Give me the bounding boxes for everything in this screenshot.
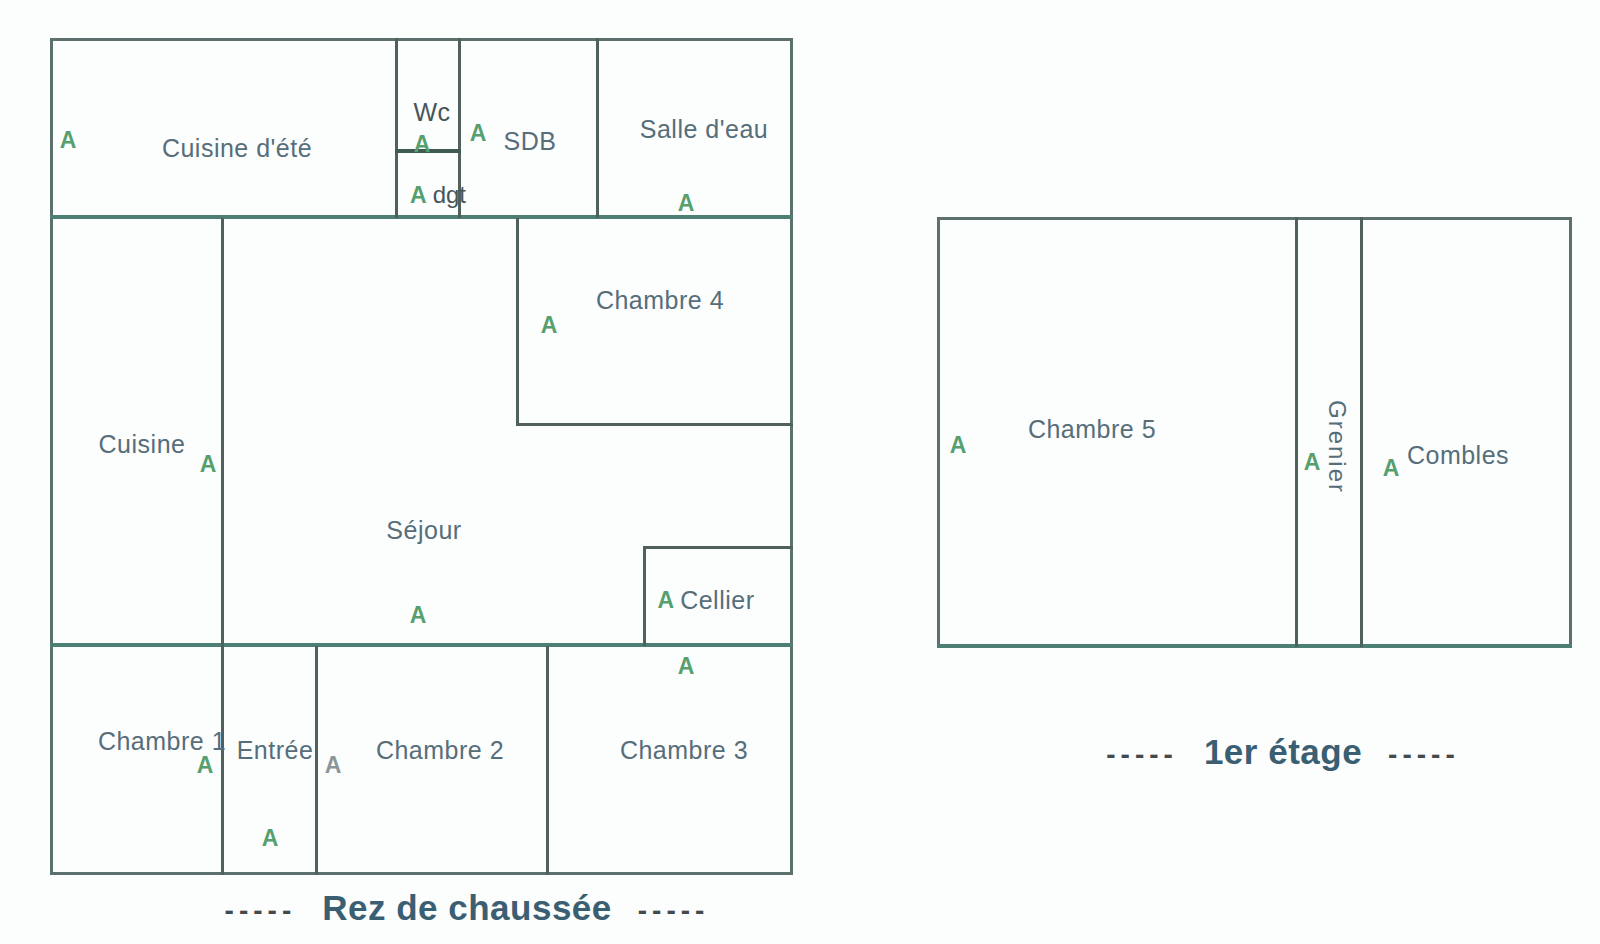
room-label-dgt-group: A dgt bbox=[410, 181, 466, 209]
ground-floor-caption-text: Rez de chaussée bbox=[322, 888, 612, 928]
caption-dashes-left: ----- bbox=[1106, 735, 1178, 769]
marker-cuisine: A bbox=[200, 453, 217, 476]
wall-chambre1-right bbox=[221, 646, 224, 875]
marker-cellier: A bbox=[658, 589, 675, 612]
marker-sdb: A bbox=[470, 122, 487, 145]
wall-entree-right bbox=[315, 646, 318, 875]
marker-chambre1: A bbox=[197, 754, 214, 777]
room-label-chambre5: Chambre 5 bbox=[1028, 415, 1156, 444]
floor-plan-canvas: Cuisine d'été Wc A dgt SDB Salle d'eau C… bbox=[0, 0, 1600, 944]
room-label-chambre2: Chambre 2 bbox=[376, 736, 504, 765]
room-label-entree: Entrée bbox=[237, 736, 314, 765]
first-floor-caption: ----- 1er étage ----- bbox=[1106, 732, 1459, 772]
room-label-chambre4: Chambre 4 bbox=[596, 286, 724, 315]
marker-grenier: A bbox=[1304, 451, 1321, 474]
marker-combles: A bbox=[1383, 457, 1400, 480]
marker-cuisine-ete: A bbox=[60, 129, 77, 152]
marker-chambre3: A bbox=[678, 655, 695, 678]
room-label-sejour: Séjour bbox=[386, 516, 461, 545]
room-label-sdb: SDB bbox=[504, 127, 557, 156]
wall-chambre4-bottom bbox=[516, 423, 793, 426]
first-floor-caption-text: 1er étage bbox=[1204, 732, 1362, 772]
room-label-wc: Wc bbox=[413, 98, 450, 127]
wall-cellier-top bbox=[643, 546, 793, 549]
room-label-combles: Combles bbox=[1407, 441, 1509, 470]
room-label-dgt: dgt bbox=[433, 181, 466, 209]
room-label-salle-eau: Salle d'eau bbox=[640, 115, 768, 144]
wall-chambre4-left bbox=[516, 218, 519, 426]
wall-cellier-left bbox=[643, 548, 646, 646]
room-label-cuisine-ete: Cuisine d'été bbox=[162, 134, 312, 163]
marker-chambre4: A bbox=[541, 314, 558, 337]
caption-dashes-right: ----- bbox=[638, 891, 710, 925]
ground-floor-caption: ----- Rez de chaussée ----- bbox=[225, 888, 710, 928]
caption-dashes-left: ----- bbox=[225, 891, 297, 925]
wall-chambre2-right bbox=[546, 646, 549, 875]
wall-cuisine-right bbox=[221, 218, 224, 646]
room-label-chambre3: Chambre 3 bbox=[620, 736, 748, 765]
marker-entree: A bbox=[262, 827, 279, 850]
marker-salle-eau: A bbox=[678, 192, 695, 215]
wall-grenier-right bbox=[1360, 217, 1363, 647]
wall-cuisine-ete-right bbox=[395, 38, 398, 218]
marker-wc: A bbox=[414, 133, 431, 156]
marker-dgt: A bbox=[410, 184, 427, 207]
room-label-cuisine: Cuisine bbox=[99, 430, 186, 459]
wall-first-floor-bottom bbox=[937, 644, 1572, 648]
room-label-cellier-group: A Cellier bbox=[658, 586, 755, 615]
wall-bottom-band-top bbox=[50, 643, 793, 647]
wall-grenier-left bbox=[1295, 217, 1298, 647]
room-label-cellier: Cellier bbox=[680, 586, 754, 615]
marker-sejour: A bbox=[410, 604, 427, 627]
caption-dashes-right: ----- bbox=[1388, 735, 1460, 769]
marker-chambre2: A bbox=[325, 754, 342, 777]
marker-chambre5: A bbox=[950, 434, 967, 457]
wall-top-band-bottom bbox=[50, 215, 793, 219]
room-label-grenier: Grenier bbox=[1323, 400, 1351, 494]
wall-sdb-right bbox=[596, 38, 599, 218]
